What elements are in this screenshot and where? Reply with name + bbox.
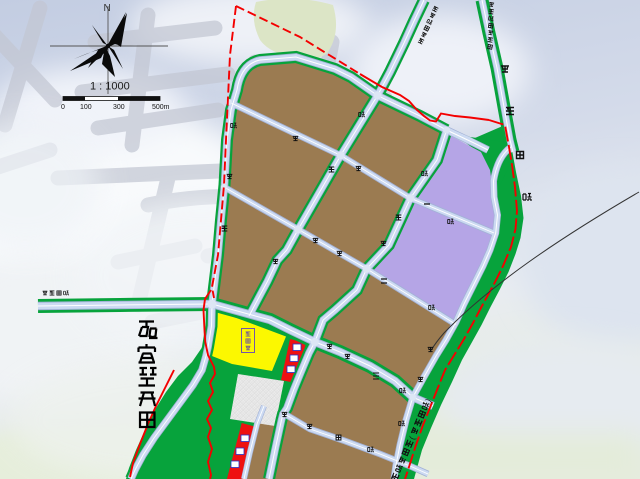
svg-text:N: N	[104, 3, 111, 14]
svg-text:500m: 500m	[152, 104, 170, 111]
svg-text:100: 100	[80, 104, 92, 111]
svg-text:1 : 1000: 1 : 1000	[90, 81, 130, 93]
svg-text:0: 0	[61, 104, 65, 111]
svg-text:300: 300	[113, 104, 125, 111]
